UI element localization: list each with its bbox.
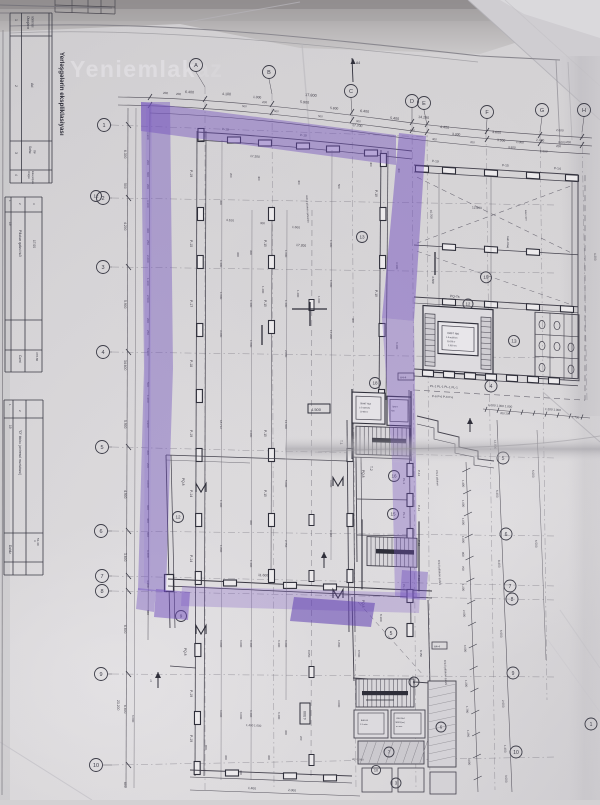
- svg-text:4.900: 4.900: [123, 490, 127, 499]
- svg-text:600: 600: [123, 782, 127, 788]
- svg-text:3.000: 3.000: [497, 138, 506, 143]
- svg-text:23.200: 23.200: [116, 700, 120, 710]
- svg-text:200: 200: [176, 92, 181, 96]
- svg-text:3.110: 3.110: [329, 530, 333, 537]
- svg-text:17.200: 17.200: [296, 243, 307, 248]
- svg-text:5.000: 5.000: [531, 470, 535, 478]
- svg-text:A4: A4: [356, 61, 360, 65]
- svg-text:T-2: T-2: [369, 466, 373, 471]
- svg-text:1.800: 1.800: [219, 545, 223, 553]
- svg-text:1.400: 1.400: [219, 500, 223, 508]
- svg-text:Yerləşgələrin ekspliklasiyası: Yerləşgələrin ekspliklasiyası: [58, 52, 65, 136]
- svg-text:m²: m²: [33, 150, 37, 154]
- svg-text:1.600: 1.600: [317, 296, 321, 304]
- svg-text:1.000: 1.000: [461, 518, 465, 526]
- svg-text:300: 300: [267, 755, 271, 760]
- svg-text:6.400: 6.400: [249, 640, 253, 648]
- svg-text:2.600: 2.600: [501, 700, 505, 708]
- svg-text:17.00: 17.00: [32, 240, 36, 248]
- svg-text:3.000: 3.000: [337, 700, 341, 708]
- svg-text:10: 10: [374, 768, 378, 772]
- svg-text:1.400: 1.400: [329, 240, 333, 248]
- svg-text:8.500: 8.500: [357, 650, 361, 658]
- svg-text:3.000: 3.000: [467, 758, 471, 766]
- svg-text:P-18: P-18: [189, 360, 193, 367]
- svg-text:18.712: 18.712: [219, 420, 223, 429]
- svg-text:P-14: P-14: [189, 490, 193, 497]
- svg-text:A: A: [194, 63, 198, 69]
- svg-text:6.000: 6.000: [239, 712, 243, 720]
- svg-text:вн.зал: вн.зал: [396, 726, 403, 728]
- svg-text:8.400: 8.400: [497, 560, 501, 568]
- svg-text:4.500: 4.500: [303, 711, 307, 720]
- svg-text:500: 500: [337, 184, 341, 189]
- svg-text:P-15: P-15: [502, 163, 509, 167]
- svg-text:300: 300: [249, 250, 253, 255]
- svg-text:6.400: 6.400: [277, 712, 281, 720]
- svg-text:1.200: 1.200: [464, 680, 468, 688]
- svg-text:8.100: 8.100: [379, 614, 383, 622]
- svg-text:PQ-8: PQ-8: [181, 478, 185, 486]
- svg-text:1: 1: [150, 679, 152, 683]
- svg-text:800: 800: [204, 745, 208, 750]
- svg-text:13: 13: [511, 338, 517, 343]
- svg-text:ЛИФТ №4: ЛИФТ №4: [360, 402, 372, 405]
- svg-text:6.400: 6.400: [185, 90, 194, 94]
- svg-text:5.900: 5.900: [123, 300, 127, 309]
- svg-text:1.600: 1.600: [249, 340, 253, 348]
- svg-text:6.600: 6.600: [499, 630, 503, 638]
- svg-text:1.400: 1.400: [248, 786, 256, 790]
- svg-text:ЛИФТ(tex): ЛИФТ(tex): [395, 721, 405, 724]
- svg-text:300: 300: [224, 755, 228, 760]
- svg-text:700: 700: [461, 566, 465, 571]
- svg-text:6.500: 6.500: [534, 540, 538, 548]
- svg-text:1.600: 1.600: [284, 250, 288, 258]
- svg-text:1.800: 1.800: [461, 536, 465, 544]
- svg-text:P-15: P-15: [263, 430, 267, 437]
- svg-text:1.000: 1.000: [540, 149, 548, 153]
- svg-text:Otaqların: Otaqların: [26, 16, 30, 29]
- svg-text:3.400: 3.400: [249, 430, 253, 438]
- svg-text:6.300: 6.300: [123, 150, 127, 159]
- svg-text:3.600: 3.600: [123, 553, 127, 562]
- svg-text:P-19: P-19: [189, 430, 193, 437]
- svg-text:1.400: 1.400: [296, 290, 300, 298]
- svg-text:P-19: P-19: [189, 170, 193, 177]
- svg-text:9: 9: [512, 671, 515, 677]
- svg-text:300: 300: [351, 318, 355, 323]
- svg-text:1.400: 1.400: [503, 745, 507, 753]
- svg-text:6.400: 6.400: [249, 710, 253, 718]
- svg-text:P-19: P-19: [432, 159, 439, 163]
- svg-text:1: 1: [14, 19, 18, 21]
- svg-text:6: 6: [99, 529, 102, 535]
- svg-text:8.150: 8.150: [419, 650, 423, 657]
- svg-text:200: 200: [299, 736, 303, 741]
- svg-text:E: E: [422, 101, 426, 107]
- svg-text:500: 500: [410, 128, 415, 132]
- svg-text:6.400: 6.400: [360, 109, 369, 114]
- svg-text:500: 500: [242, 104, 247, 108]
- svg-text:4.500: 4.500: [431, 276, 435, 284]
- svg-text:5: 5: [100, 445, 103, 451]
- svg-text:1.400 1.600: 1.400 1.600: [246, 723, 262, 728]
- svg-text:6.200: 6.200: [284, 640, 288, 648]
- svg-text:900: 900: [461, 552, 465, 557]
- svg-text:3.600: 3.600: [492, 130, 501, 135]
- svg-text:8: 8: [511, 597, 514, 603]
- svg-text:4.500: 4.500: [311, 407, 322, 412]
- svg-text:H: H: [582, 108, 586, 114]
- svg-text:Cəmi: Cəmi: [18, 355, 22, 363]
- svg-text:200: 200: [229, 173, 233, 178]
- svg-text:6.000: 6.000: [219, 640, 223, 648]
- svg-text:6.400: 6.400: [277, 640, 281, 648]
- svg-text:378.80: 378.80: [35, 352, 39, 362]
- svg-text:P-12: P-12: [417, 470, 421, 476]
- svg-text:4.100: 4.100: [222, 92, 231, 96]
- svg-text:"D" bloku (antresol mərtəbəsi): "D" bloku (antresol mərtəbəsi): [18, 430, 22, 475]
- svg-text:3.000: 3.000: [558, 140, 566, 145]
- svg-text:17.200: 17.200: [329, 330, 333, 339]
- svg-text:6.400: 6.400: [495, 490, 499, 498]
- svg-text:300: 300: [284, 730, 288, 735]
- svg-text:12: 12: [466, 302, 471, 307]
- svg-text:D: D: [410, 99, 414, 105]
- svg-text:6.600: 6.600: [123, 625, 127, 634]
- svg-text:500: 500: [318, 114, 323, 118]
- svg-text:2.600: 2.600: [462, 610, 466, 618]
- svg-text:P-19: P-19: [374, 190, 378, 197]
- svg-text:19: 19: [8, 425, 12, 429]
- svg-text:34.600: 34.600: [123, 360, 127, 370]
- svg-text:300: 300: [249, 520, 253, 525]
- svg-text:5.000: 5.000: [284, 480, 288, 488]
- svg-text:PQ-8: PQ-8: [183, 648, 187, 656]
- svg-text:6.600: 6.600: [131, 715, 135, 723]
- svg-text:1.800: 1.800: [337, 640, 341, 648]
- svg-text:5.900: 5.900: [123, 420, 127, 429]
- svg-text:4.200: 4.200: [593, 253, 597, 261]
- svg-text:G: G: [540, 108, 544, 114]
- svg-text:17.800: 17.800: [305, 93, 317, 98]
- svg-text:4.400: 4.400: [440, 125, 449, 130]
- svg-text:Q-400 кг: Q-400 кг: [360, 411, 368, 413]
- svg-text:Otağın: Otağın: [27, 171, 31, 179]
- svg-text:P-14: P-14: [554, 166, 561, 170]
- svg-text:200: 200: [566, 140, 571, 144]
- svg-text:300: 300: [260, 221, 265, 225]
- svg-text:8.050: 8.050: [307, 650, 311, 658]
- svg-text:2.750: 2.750: [284, 540, 288, 548]
- svg-text:1.790: 1.790: [465, 706, 469, 714]
- svg-text:Ad: Ad: [30, 83, 34, 87]
- svg-text:13: 13: [359, 235, 365, 240]
- svg-text:kateqoriyası: kateqoriyası: [31, 171, 34, 184]
- svg-text:7: 7: [100, 574, 103, 580]
- svg-text:3: 3: [101, 265, 104, 271]
- svg-text:1.400: 1.400: [219, 260, 223, 268]
- svg-text:4: 4: [101, 350, 104, 356]
- svg-text:7: 7: [509, 584, 512, 590]
- svg-text:400: 400: [239, 770, 243, 775]
- svg-text:C: C: [349, 89, 353, 95]
- svg-text:1.400: 1.400: [249, 300, 253, 308]
- svg-text:1.200: 1.200: [461, 584, 465, 592]
- svg-text:200: 200: [556, 144, 561, 148]
- svg-text:P-15: P-15: [263, 490, 267, 497]
- svg-text:2.600: 2.600: [556, 128, 564, 133]
- svg-text:4: 4: [490, 384, 493, 390]
- svg-text:4.100: 4.100: [226, 218, 234, 222]
- svg-text:6.600: 6.600: [463, 645, 467, 653]
- svg-text:ванн.зал: ванн.зал: [524, 210, 528, 221]
- svg-text:ЛИФТ №6: ЛИФТ №6: [447, 331, 459, 336]
- svg-text:Yeniemlak: Yeniemlak: [70, 56, 196, 82]
- svg-text:kab./otaq: kab./otaq: [506, 236, 510, 248]
- svg-text:2.000: 2.000: [288, 788, 296, 792]
- svg-text:1: 1: [590, 722, 593, 728]
- svg-text:3.200: 3.200: [219, 330, 223, 338]
- svg-text:18: 18: [372, 381, 378, 386]
- svg-text:1.296: 1.296: [466, 730, 470, 738]
- svg-text:3: 3: [14, 152, 18, 154]
- svg-text:1.600: 1.600: [219, 292, 223, 300]
- svg-text:nömrəsi: nömrəsi: [31, 16, 35, 28]
- svg-text:500: 500: [123, 183, 127, 189]
- svg-text:1.400: 1.400: [249, 560, 253, 568]
- svg-text:1.400: 1.400: [261, 286, 265, 294]
- svg-text:13.600: 13.600: [284, 420, 288, 429]
- svg-text:1.400: 1.400: [284, 300, 288, 308]
- svg-text:6: 6: [505, 532, 508, 538]
- svg-text:200: 200: [470, 140, 475, 144]
- svg-text:1.600: 1.600: [329, 280, 333, 288]
- svg-text:A4-4: A4-4: [434, 645, 440, 649]
- svg-text:P-15: P-15: [263, 300, 267, 307]
- svg-text:2.400: 2.400: [536, 138, 545, 142]
- svg-text:1.400: 1.400: [461, 480, 465, 488]
- svg-text:600: 600: [274, 109, 279, 113]
- svg-text:P-14: P-14: [189, 555, 193, 562]
- svg-text:P-15: P-15: [263, 240, 267, 247]
- svg-text:СВЧ №4: СВЧ №4: [396, 717, 405, 720]
- svg-text:PQ-8: PQ-8: [361, 470, 365, 478]
- svg-text:3.000: 3.000: [329, 480, 333, 488]
- svg-text:300: 300: [236, 252, 240, 257]
- svg-text:2: 2: [101, 196, 104, 202]
- svg-text:12.800: 12.800: [472, 205, 482, 210]
- svg-text:12: 12: [93, 194, 99, 199]
- svg-text:3.300: 3.300: [452, 132, 461, 137]
- svg-text:400: 400: [369, 162, 373, 167]
- svg-text:400: 400: [297, 180, 301, 185]
- svg-text:19: 19: [483, 275, 489, 280]
- svg-text:4: 4: [14, 174, 18, 176]
- svg-text:6.600: 6.600: [123, 705, 127, 714]
- svg-text:2.000: 2.000: [284, 350, 288, 358]
- svg-text:P-19: P-19: [189, 735, 193, 742]
- svg-text:19: 19: [8, 222, 12, 226]
- svg-text:PQ-7a: PQ-7a: [450, 294, 460, 299]
- svg-text:2: 2: [14, 85, 18, 87]
- svg-text:6.000: 6.000: [239, 640, 243, 648]
- svg-text:1.000: 1.000: [253, 95, 262, 99]
- svg-text:Sahə: Sahə: [28, 146, 32, 154]
- svg-text:3.000: 3.000: [504, 775, 508, 783]
- svg-text:Dəhliz: Dəhliz: [8, 545, 12, 554]
- svg-text:10: 10: [93, 763, 99, 769]
- svg-text:1.0 май/сек: 1.0 май/сек: [359, 406, 370, 409]
- svg-text:300: 300: [219, 200, 223, 205]
- svg-text:11.600: 11.600: [258, 573, 268, 578]
- svg-text:A36.66: A36.66: [361, 719, 369, 722]
- svg-text:P-12: P-12: [417, 505, 421, 511]
- svg-text:400: 400: [257, 176, 261, 181]
- svg-text:200: 200: [163, 91, 168, 95]
- svg-text:400 3.060: 400 3.060: [352, 757, 364, 762]
- svg-text:P-19: P-19: [374, 290, 378, 297]
- svg-text:6.000: 6.000: [219, 710, 223, 718]
- svg-text:1.5 кв/м: 1.5 кв/м: [360, 724, 368, 726]
- svg-text:5.800: 5.800: [330, 106, 339, 111]
- svg-text:P-19: P-19: [189, 690, 193, 697]
- svg-text:3.300: 3.300: [508, 145, 516, 150]
- svg-text:5: 5: [390, 631, 393, 637]
- svg-text:Pilləkən qəfəsi №3: Pilləkən qəfəsi №3: [18, 230, 22, 257]
- svg-text:1.000: 1.000: [516, 140, 524, 145]
- svg-text:4.200: 4.200: [123, 222, 127, 231]
- svg-text:51.40: 51.40: [36, 538, 40, 546]
- svg-text:9: 9: [99, 672, 102, 678]
- svg-text:5.900: 5.900: [300, 100, 309, 105]
- svg-text:P-17: P-17: [189, 300, 193, 307]
- svg-text:8: 8: [100, 589, 103, 595]
- svg-text:200: 200: [262, 100, 268, 104]
- svg-text:P-15: P-15: [189, 240, 193, 247]
- svg-text:1: 1: [102, 123, 105, 129]
- svg-text:1.600: 1.600: [292, 225, 300, 229]
- svg-text:400: 400: [432, 137, 437, 141]
- svg-text:1.600: 1.600: [461, 500, 465, 508]
- svg-text:B: B: [267, 70, 271, 76]
- svg-text:12: 12: [175, 515, 181, 520]
- svg-text:10.700: 10.700: [429, 210, 433, 219]
- svg-text:10: 10: [513, 750, 519, 756]
